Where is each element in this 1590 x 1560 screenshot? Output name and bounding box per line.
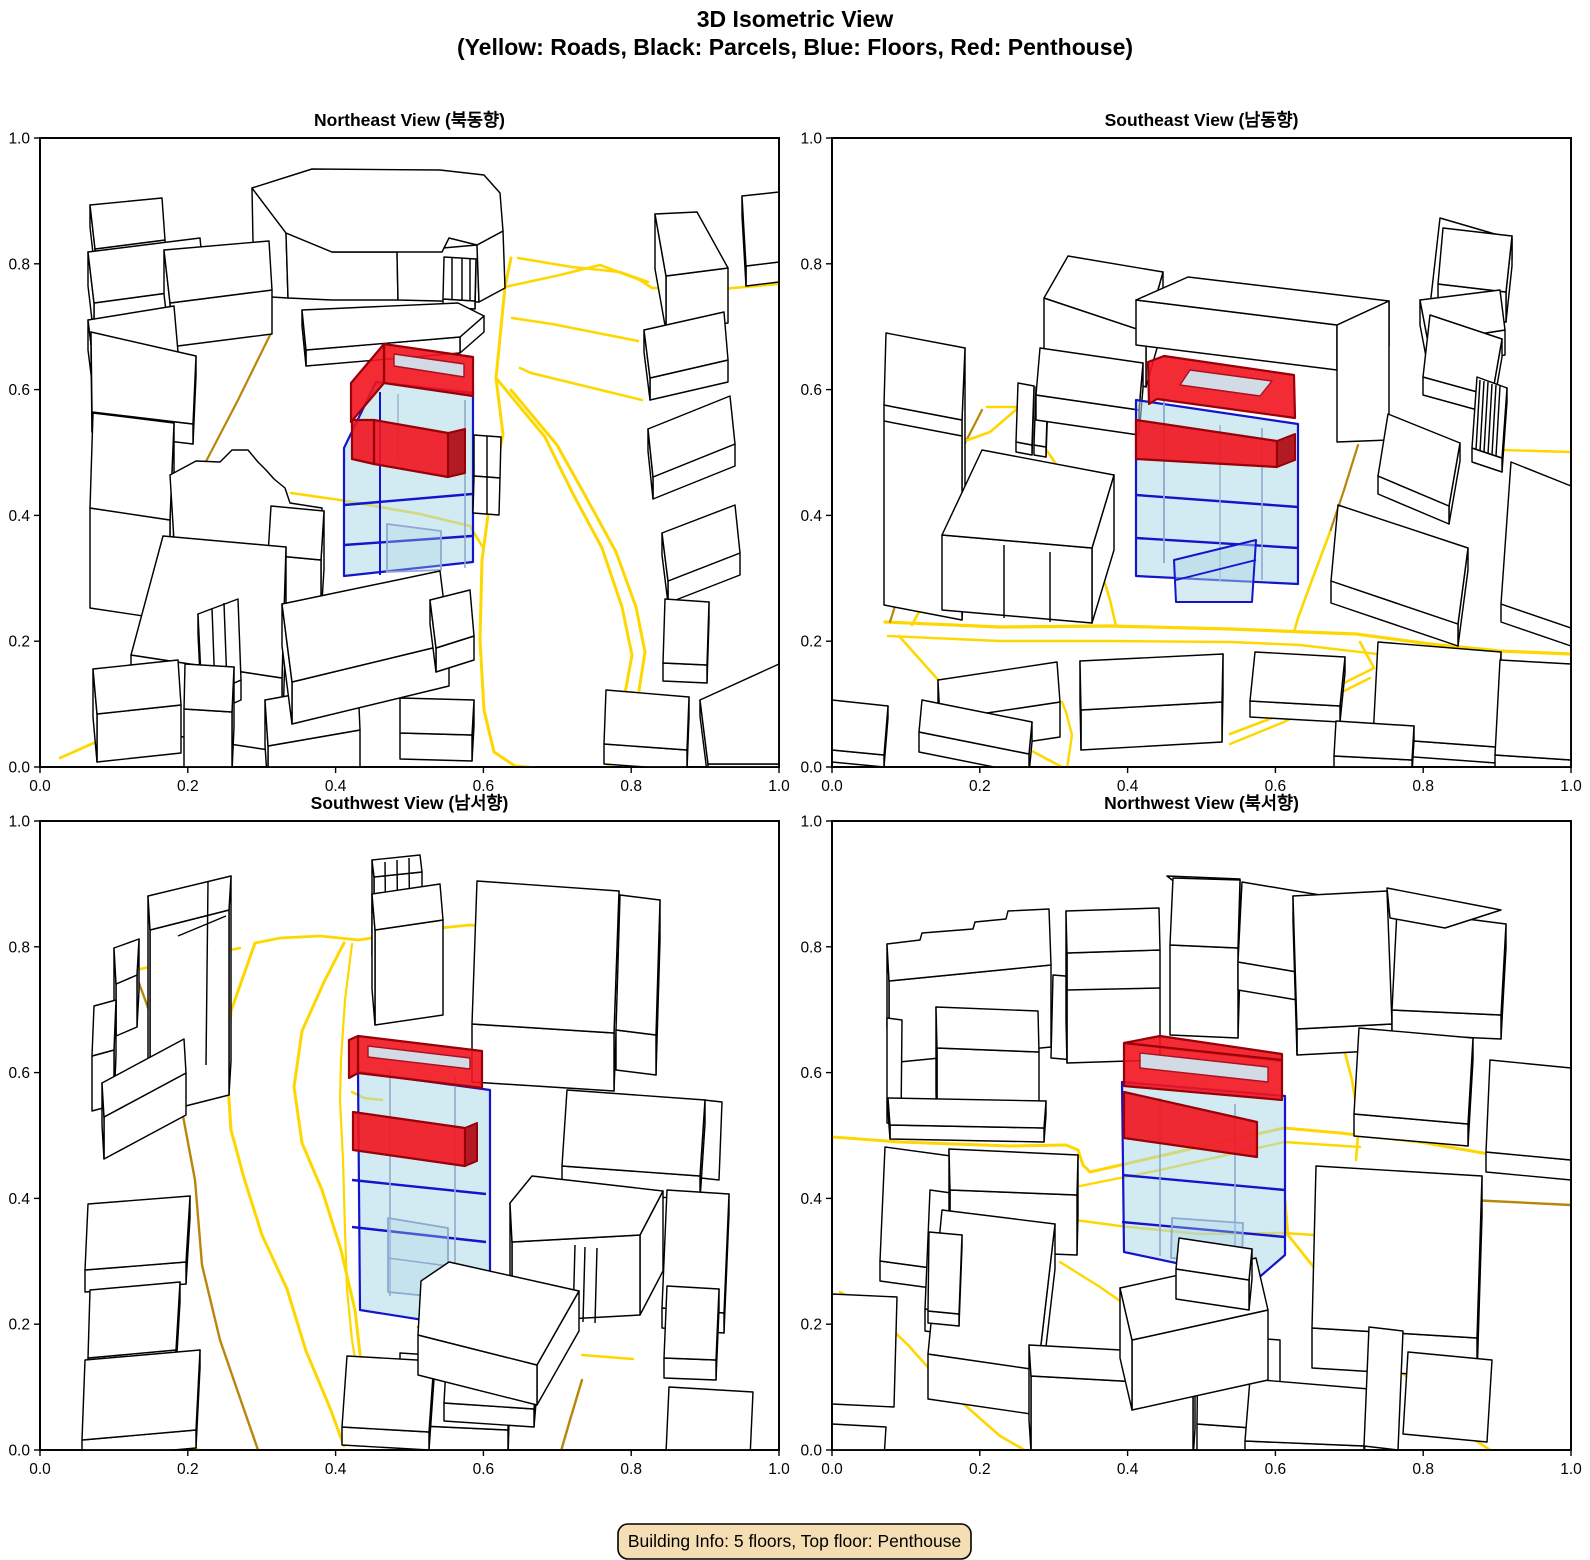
svg-text:0.0: 0.0: [800, 1443, 822, 1460]
svg-text:0.0: 0.0: [29, 1461, 51, 1478]
svg-text:1.0: 1.0: [8, 814, 30, 831]
svg-text:0.2: 0.2: [969, 778, 991, 795]
svg-text:0.0: 0.0: [800, 760, 822, 777]
svg-text:0.0: 0.0: [8, 1443, 30, 1460]
svg-text:Building Info: 5 floors, Top f: Building Info: 5 floors, Top floor: Pent…: [628, 1531, 961, 1551]
svg-text:0.2: 0.2: [177, 1461, 199, 1478]
svg-text:(Yellow: Roads, Black: Parcels: (Yellow: Roads, Black: Parcels, Blue: Fl…: [457, 34, 1133, 60]
svg-text:1.0: 1.0: [800, 131, 822, 148]
svg-text:0.6: 0.6: [800, 1065, 822, 1082]
svg-text:Northwest View (북서향): Northwest View (북서향): [1104, 793, 1299, 813]
svg-text:0.8: 0.8: [1412, 1461, 1434, 1478]
svg-text:1.0: 1.0: [768, 1461, 790, 1478]
svg-text:0.6: 0.6: [8, 1065, 30, 1082]
svg-text:0.8: 0.8: [8, 256, 30, 273]
svg-text:0.8: 0.8: [620, 1461, 642, 1478]
svg-text:0.4: 0.4: [800, 1191, 822, 1208]
svg-text:0.8: 0.8: [8, 939, 30, 956]
svg-text:0.8: 0.8: [800, 256, 822, 273]
svg-text:1.0: 1.0: [800, 814, 822, 831]
svg-text:1.0: 1.0: [8, 131, 30, 148]
svg-text:0.4: 0.4: [325, 1461, 347, 1478]
svg-text:0.2: 0.2: [800, 634, 822, 651]
svg-text:0.2: 0.2: [8, 1317, 30, 1334]
svg-text:1.0: 1.0: [1560, 778, 1582, 795]
svg-text:0.2: 0.2: [800, 1317, 822, 1334]
svg-text:Southeast View (남동향): Southeast View (남동향): [1105, 110, 1299, 130]
svg-text:0.8: 0.8: [800, 939, 822, 956]
svg-text:0.2: 0.2: [969, 1461, 991, 1478]
svg-text:0.8: 0.8: [1412, 778, 1434, 795]
svg-text:0.4: 0.4: [8, 508, 30, 525]
svg-text:1.0: 1.0: [1560, 1461, 1582, 1478]
svg-text:1.0: 1.0: [768, 778, 790, 795]
svg-text:0.6: 0.6: [800, 382, 822, 399]
svg-text:0.0: 0.0: [821, 1461, 843, 1478]
svg-text:0.4: 0.4: [8, 1191, 30, 1208]
svg-text:0.4: 0.4: [800, 508, 822, 525]
svg-text:0.8: 0.8: [620, 778, 642, 795]
svg-text:0.6: 0.6: [473, 1461, 495, 1478]
svg-text:0.2: 0.2: [177, 778, 199, 795]
svg-text:0.0: 0.0: [8, 760, 30, 777]
svg-text:0.6: 0.6: [8, 382, 30, 399]
svg-text:0.2: 0.2: [8, 634, 30, 651]
svg-text:0.4: 0.4: [1117, 1461, 1139, 1478]
svg-text:Northeast View (북동향): Northeast View (북동향): [314, 110, 505, 130]
svg-text:3D Isometric View: 3D Isometric View: [697, 6, 894, 32]
svg-text:0.6: 0.6: [1265, 1461, 1287, 1478]
svg-text:Southwest View (남서향): Southwest View (남서향): [311, 793, 509, 813]
svg-text:0.0: 0.0: [29, 778, 51, 795]
svg-text:0.0: 0.0: [821, 778, 843, 795]
